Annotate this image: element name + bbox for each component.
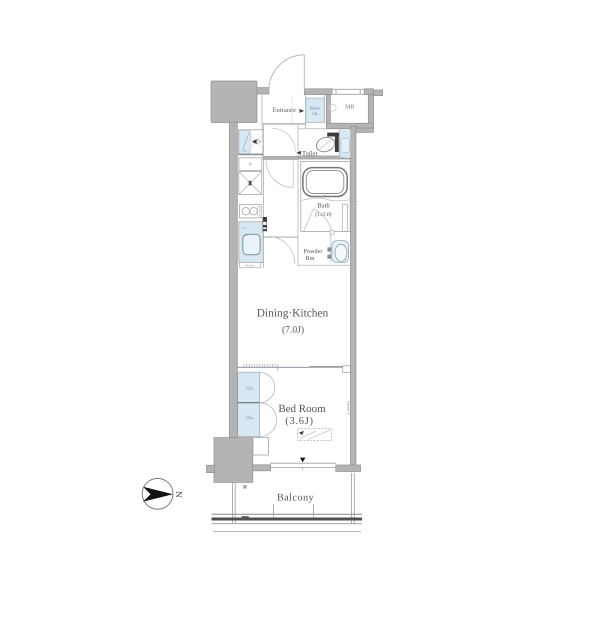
svg-text:Toilet: Toilet	[302, 150, 317, 157]
svg-text:Bed Room: Bed Room	[278, 403, 326, 415]
svg-text:Kitchen: Kitchen	[245, 264, 255, 268]
svg-text:(3.6J): (3.6J)	[285, 416, 313, 427]
svg-text:Clo.: Clo.	[246, 415, 253, 420]
svg-text:R: R	[249, 162, 252, 167]
svg-text:MB: MB	[345, 104, 354, 110]
svg-text:Dining·Kitchen: Dining·Kitchen	[257, 307, 329, 319]
svg-text:Cls: Cls	[312, 111, 318, 116]
svg-text:Bath: Bath	[317, 203, 330, 210]
svg-text:2w: 2w	[340, 156, 345, 160]
svg-text:Shoes: Shoes	[310, 106, 320, 111]
svg-text:Cnt: Cnt	[242, 226, 247, 230]
svg-text:Rm: Rm	[306, 255, 315, 262]
svg-text:N: N	[174, 491, 184, 498]
svg-text:(7.0J): (7.0J)	[282, 324, 304, 335]
svg-text:750: 750	[241, 149, 246, 153]
svg-text:Entrance: Entrance	[273, 107, 297, 114]
svg-text:Hanger P.: Hanger P.	[346, 401, 350, 415]
svg-text:Balcony: Balcony	[277, 492, 315, 503]
svg-text:Clo.: Clo.	[246, 385, 253, 390]
